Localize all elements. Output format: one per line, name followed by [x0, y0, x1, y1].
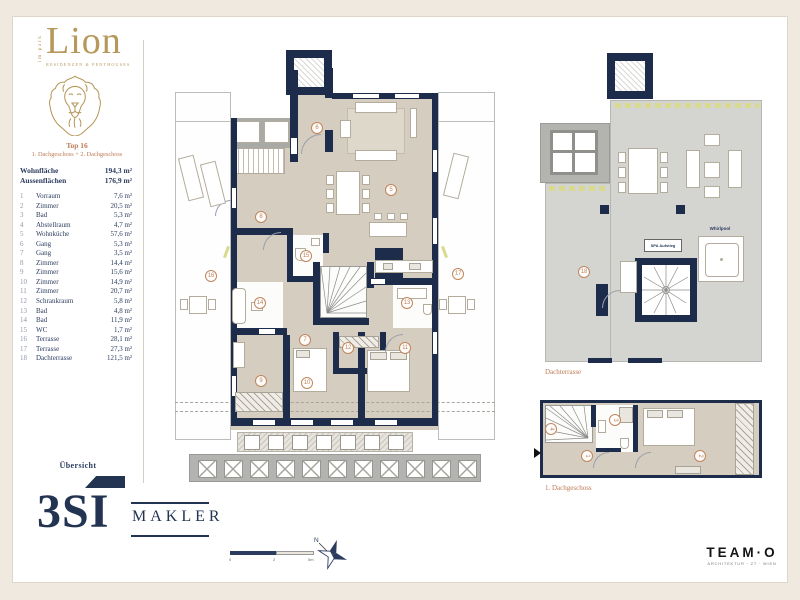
room-row: 4Abstellraum4,7 m²	[20, 221, 132, 231]
whirlpool-label: Whirlpool	[690, 226, 750, 231]
room-row-area: 5,8 m²	[114, 297, 132, 307]
room-row-number: 11	[20, 287, 36, 297]
scale-tick: 2	[273, 557, 275, 562]
room-number-14: 14	[254, 297, 266, 309]
room-row-number: 13	[20, 307, 36, 317]
architect-name: TEAM·O	[696, 545, 788, 560]
room-row-area: 15,6 m²	[110, 268, 132, 278]
sun-lounger	[686, 150, 700, 188]
wall	[325, 130, 333, 152]
room-number-16: 16	[205, 270, 217, 282]
staircase	[320, 266, 367, 318]
architect-logo: TEAM·O ARCHITEKTUR · ZT · WIEN	[696, 545, 788, 566]
room-table: 1Vorraum7,6 m²2Zimmer20,5 m²3Bad5,3 m²4A…	[20, 192, 132, 364]
pillow	[296, 350, 310, 358]
room-number-2: 2	[694, 450, 706, 462]
scale-bar-light	[276, 551, 314, 555]
lounge-chair	[704, 186, 720, 198]
room-number-10: 10	[301, 377, 313, 389]
sink	[383, 263, 393, 270]
room-row: 13Bad4,8 m²	[20, 307, 132, 317]
sofa	[355, 102, 397, 113]
roof-dash-line	[175, 411, 495, 412]
room-row: 5Wohnküche57,6 m²	[20, 230, 132, 240]
skylight	[364, 435, 380, 450]
skylight	[340, 435, 356, 450]
rug	[347, 108, 405, 154]
room-row-label: Bad	[36, 316, 111, 326]
broker-logo: 3SI	[37, 490, 109, 534]
chair	[660, 167, 668, 178]
skylight	[432, 460, 451, 478]
entrance-arrow	[534, 448, 541, 458]
summary-row-aussenflaechen: Aussenflächen 176,9 m²	[20, 176, 132, 186]
pillow	[647, 410, 663, 418]
room-row-number: 6	[20, 240, 36, 250]
room-row-area: 20,7 m²	[110, 287, 132, 297]
chair	[208, 299, 216, 310]
chair	[618, 182, 626, 193]
shower	[619, 407, 633, 423]
scale-bar-dark	[230, 551, 276, 555]
planting-strip	[615, 103, 759, 108]
terrace-17	[438, 121, 495, 440]
chair	[326, 203, 334, 213]
skylight	[250, 460, 269, 478]
plan-caption: 1. Dachgeschoss	[545, 484, 592, 492]
architect-tagline: ARCHITEKTUR · ZT · WIEN	[696, 561, 788, 566]
window	[253, 420, 275, 425]
wardrobe	[235, 392, 283, 412]
chair	[618, 152, 626, 163]
sun-lounger	[728, 150, 742, 188]
room-row-number: 10	[20, 278, 36, 288]
room-row: 17Terrasse27,3 m²	[20, 345, 132, 355]
room-row-area: 4,7 m²	[114, 221, 132, 231]
parapet-left	[175, 92, 231, 122]
skylight	[268, 435, 284, 450]
chair	[180, 299, 188, 310]
room-row-area: 57,6 m²	[110, 230, 132, 240]
room-row-label: Zimmer	[36, 202, 110, 212]
brand-vertical-text: im park	[37, 30, 43, 62]
room-row-area: 7,6 m²	[114, 192, 132, 202]
post	[676, 205, 685, 214]
room-row-label: Zimmer	[36, 259, 110, 269]
broker-logo-rule-top	[131, 502, 209, 504]
window	[291, 420, 313, 425]
room-row-label: Bad	[36, 307, 114, 317]
dining-table	[336, 171, 360, 215]
wall	[313, 262, 320, 325]
toilet	[423, 304, 432, 315]
door	[259, 329, 275, 334]
chair	[362, 175, 370, 185]
room-row-number: 15	[20, 326, 36, 336]
room-row-area: 14,9 m²	[110, 278, 132, 288]
pillow	[370, 352, 387, 360]
room-number-13: 13	[401, 297, 413, 309]
room-row: 18Dachterrasse121,5 m²	[20, 354, 132, 364]
room-row-area: 11,9 m²	[111, 316, 132, 326]
room-row-area: 28,1 m²	[110, 335, 132, 345]
room-row-label: Wohnküche	[36, 230, 110, 240]
brand-wordmark: Lion	[46, 24, 122, 58]
compass-label: N	[314, 537, 319, 544]
toilet	[620, 438, 629, 449]
roof-strip	[237, 432, 413, 452]
room-number-4: 4	[545, 423, 557, 435]
room-row-area: 27,3 m²	[110, 345, 132, 355]
room-number-6: 6	[311, 122, 323, 134]
room-row-area: 5,3 m²	[114, 211, 132, 221]
terrace-floor	[610, 100, 762, 362]
wall	[332, 93, 438, 99]
washbasin	[311, 238, 320, 246]
parapet-right	[438, 92, 495, 122]
chimney	[607, 53, 653, 99]
room-row: 2Zimmer20,5 m²	[20, 202, 132, 212]
skylight	[380, 460, 399, 478]
room-row-number: 2	[20, 202, 36, 212]
room-row-label: Vorraum	[36, 192, 114, 202]
chair	[660, 182, 668, 193]
chair	[362, 203, 370, 213]
room-row-label: Schrankraum	[36, 297, 114, 307]
room-row-number: 1	[20, 192, 36, 202]
room-row: 11Zimmer20,7 m²	[20, 287, 132, 297]
room-row-label: Terrasse	[36, 335, 110, 345]
skylight	[198, 460, 217, 478]
chair	[618, 167, 626, 178]
room-row: 8Zimmer14,4 m²	[20, 259, 132, 269]
room-row-label: Abstellraum	[36, 221, 114, 231]
door	[291, 138, 297, 154]
wall	[287, 233, 293, 282]
skylight	[316, 435, 332, 450]
window	[433, 332, 437, 354]
unit-subtitle: 1. Dachgeschoss + 2. Dachgeschoss	[20, 151, 134, 158]
washbasin	[397, 288, 427, 299]
room-row: 15WC1,7 m²	[20, 326, 132, 336]
summary-label: Wohnfläche	[20, 166, 58, 176]
brochure-page: im park Lion RESIDENZEN & PENTHOUSES Top…	[0, 0, 800, 600]
summary-value: 176,9 m²	[105, 176, 132, 186]
dining-table	[628, 148, 658, 194]
kitchen-island	[369, 222, 407, 237]
pillow	[667, 410, 683, 418]
room-row-number: 8	[20, 259, 36, 269]
skylight	[224, 460, 243, 478]
bench	[675, 466, 701, 474]
room-number-18: 18	[578, 266, 590, 278]
room-row-number: 17	[20, 345, 36, 355]
window	[395, 94, 419, 98]
wall	[628, 358, 662, 363]
broker-logo-suffix: MAKLER	[132, 508, 224, 526]
overview-label: Übersicht	[20, 461, 136, 470]
window	[331, 420, 353, 425]
chair	[362, 189, 370, 199]
sidebar-divider	[143, 40, 144, 483]
room-row-label: Bad	[36, 211, 114, 221]
sideboard	[410, 108, 417, 138]
window	[433, 150, 437, 172]
washbasin	[598, 420, 606, 433]
room-row-number: 14	[20, 316, 36, 326]
room-row-area: 14,4 m²	[110, 259, 132, 269]
wardrobe	[235, 121, 260, 143]
lion-head-emblem	[44, 72, 106, 136]
room-row: 12Schrankraum5,8 m²	[20, 297, 132, 307]
chair	[660, 152, 668, 163]
skylight	[302, 460, 321, 478]
room-number-8: 8	[255, 211, 267, 223]
room-row: 14Bad11,9 m²	[20, 316, 132, 326]
skylight	[244, 435, 260, 450]
cooktop	[409, 263, 421, 270]
wall	[633, 405, 638, 452]
wall	[323, 233, 329, 253]
room-row-area: 4,8 m²	[114, 307, 132, 317]
desk	[233, 342, 245, 368]
scale-bar: 0 2 5m	[230, 549, 316, 563]
lounge-chair	[704, 134, 720, 146]
chair	[326, 189, 334, 199]
sofa	[355, 150, 397, 161]
room-row-number: 18	[20, 354, 36, 364]
room-row: 7Gang3,5 m²	[20, 249, 132, 259]
room-number-9: 9	[255, 375, 267, 387]
room-row: 9Zimmer15,6 m²	[20, 268, 132, 278]
wardrobe	[735, 403, 754, 475]
door	[371, 279, 385, 284]
chair	[326, 175, 334, 185]
plan-caption: Dachterrasse	[545, 368, 581, 376]
floorplan-main: 658151617141371211910	[175, 50, 495, 482]
room-row-label: Dachterrasse	[36, 354, 107, 364]
scale-tick: 0	[229, 557, 231, 562]
roof-dash-line	[175, 402, 495, 403]
skylight	[328, 460, 347, 478]
bathtub	[232, 288, 246, 324]
chair	[467, 299, 475, 310]
skylight	[406, 460, 425, 478]
room-number-17: 17	[452, 268, 464, 280]
unit-title: Top 16	[20, 141, 134, 150]
room-row-number: 16	[20, 335, 36, 345]
room-row: 16Terrasse28,1 m²	[20, 335, 132, 345]
room-row-area: 3,5 m²	[114, 249, 132, 259]
wall	[231, 228, 293, 235]
bed	[233, 148, 285, 174]
room-row: 10Zimmer14,9 m²	[20, 278, 132, 288]
terrace-table	[189, 296, 207, 314]
room-row-number: 9	[20, 268, 36, 278]
room-row-label: Zimmer	[36, 287, 110, 297]
roof-band	[189, 454, 481, 482]
window	[433, 218, 437, 244]
wall	[283, 335, 290, 418]
room-row-area: 20,5 m²	[110, 202, 132, 212]
lounge-table	[704, 162, 720, 178]
room-number-7: 7	[299, 334, 311, 346]
wall	[325, 68, 333, 98]
summary-row-wohnflaeche: Wohnfläche 194,3 m²	[20, 166, 132, 176]
stair-treads	[321, 267, 366, 317]
room-row-number: 4	[20, 221, 36, 231]
armchair	[340, 120, 351, 138]
window	[375, 420, 397, 425]
terrace-table	[448, 296, 466, 314]
stair-treads	[642, 265, 690, 315]
compass-north-icon: N	[312, 534, 348, 570]
window	[353, 94, 379, 98]
skylight	[388, 435, 404, 450]
stool	[374, 213, 382, 220]
room-row-number: 5	[20, 230, 36, 240]
planting-strip	[549, 186, 607, 191]
room-row-label: WC	[36, 326, 114, 336]
room-number-12: 12	[342, 342, 354, 354]
skylight	[458, 460, 477, 478]
room-row-label: Zimmer	[36, 278, 110, 288]
room-row-label: Zimmer	[36, 268, 110, 278]
skylight	[292, 435, 308, 450]
chair	[439, 299, 447, 310]
room-number-15: 15	[300, 250, 312, 262]
room-row-area: 121,5 m²	[107, 354, 132, 364]
floorplan-first-attic: 1. Dachgeschoss 4312	[535, 398, 767, 498]
room-row-number: 3	[20, 211, 36, 221]
room-row-label: Terrasse	[36, 345, 110, 355]
room-row-number: 7	[20, 249, 36, 259]
stool	[400, 213, 408, 220]
wall	[588, 358, 612, 363]
skylight	[276, 460, 295, 478]
broker-logo-rule-bottom	[131, 535, 209, 537]
room-number-1: 1	[581, 450, 593, 462]
summary-label: Aussenflächen	[20, 176, 66, 186]
room-number-11: 11	[399, 342, 411, 354]
window	[232, 188, 236, 208]
room-row: 1Vorraum7,6 m²	[20, 192, 132, 202]
post	[600, 205, 609, 214]
spa-stair-label: SPA Aufstieg	[644, 239, 682, 252]
wall	[231, 118, 237, 420]
stair-landing	[620, 261, 637, 293]
summary-value: 194,3 m²	[105, 166, 132, 176]
whirlpool-jet	[720, 258, 723, 261]
room-row: 3Bad5,3 m²	[20, 211, 132, 221]
stool	[387, 213, 395, 220]
room-row-label: Gang	[36, 249, 114, 259]
room-row-number: 12	[20, 297, 36, 307]
spiral-staircase	[635, 258, 697, 322]
wall	[313, 318, 369, 325]
room-number-5: 5	[385, 184, 397, 196]
skylight	[354, 460, 373, 478]
floorplan-roof-terrace: Whirlpool SPA Aufstieg Dachterrasse 18	[540, 50, 768, 390]
room-row-label: Gang	[36, 240, 114, 250]
brand-tagline: RESIDENZEN & PENTHOUSES	[46, 62, 130, 67]
room-number-3: 3	[609, 414, 621, 426]
wardrobe	[264, 121, 289, 143]
skylight-mullion	[550, 150, 598, 153]
room-row: 6Gang5,3 m²	[20, 240, 132, 250]
room-row-area: 5,3 m²	[114, 240, 132, 250]
room-row-area: 1,7 m²	[114, 326, 132, 336]
